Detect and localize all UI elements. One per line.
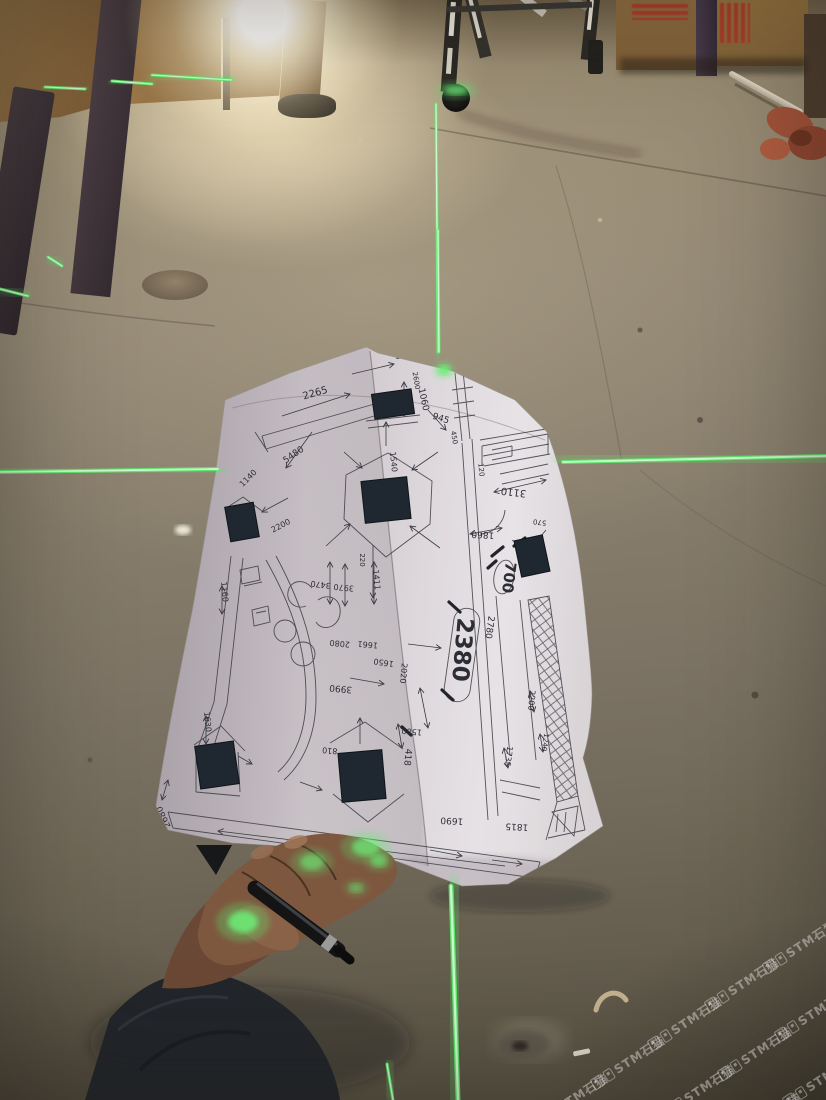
dimension-label: 1690 <box>440 814 464 825</box>
cart-shadow <box>458 112 640 154</box>
column-mark <box>225 502 260 542</box>
dimension-label: 2020 <box>398 663 409 684</box>
dimension-label: 3970 <box>333 582 354 593</box>
dimension-label: 1630 <box>202 711 213 732</box>
dimension-label: 1815 <box>505 820 528 831</box>
dimension-label: 120 <box>476 463 485 477</box>
column-mark <box>195 741 240 789</box>
hand <box>198 834 397 966</box>
dimension-label: 3990 <box>329 682 353 694</box>
paper-shadow <box>430 880 610 912</box>
cigarette-butt <box>573 1048 591 1056</box>
dimension-label: 1860 <box>471 528 495 539</box>
blueprint-paper: 2160965226526001060945548015401140450120… <box>155 347 603 900</box>
dimension-label: 220 <box>358 553 366 566</box>
pen-tip <box>338 950 350 960</box>
dimension-label: 1540 <box>388 451 399 472</box>
floor-bright-spot <box>175 525 191 535</box>
dimension-label: 2160 <box>395 348 417 361</box>
column-mark <box>338 750 386 803</box>
dark-debris <box>512 1041 528 1051</box>
dimension-label: 570 <box>533 517 547 527</box>
column-mark <box>361 477 411 524</box>
dimension-label: 2200 <box>526 690 537 711</box>
dimension-label: 810 <box>322 745 338 755</box>
dimension-label: 2080 <box>329 638 350 649</box>
dimension-label: 1580 <box>401 726 422 737</box>
dimension-label: 1661 <box>357 639 378 650</box>
dark-wedge <box>196 845 232 875</box>
dimension-label: 418 <box>401 748 412 766</box>
column-mark <box>371 389 414 419</box>
tan-debris <box>596 993 626 1010</box>
dimension-label: 1160 <box>219 581 230 602</box>
dimension-label: 965 <box>434 356 451 368</box>
dimension-label: 2380 <box>446 617 477 683</box>
dimension-label: 700 <box>498 561 520 594</box>
dimension-label: 1411 <box>371 569 382 590</box>
warehouse-photo: 2160965226526001060945548015401140450120… <box>0 0 826 1100</box>
pen-band <box>325 940 333 946</box>
scene-drawing: 2160965226526001060945548015401140450120… <box>0 0 826 1100</box>
